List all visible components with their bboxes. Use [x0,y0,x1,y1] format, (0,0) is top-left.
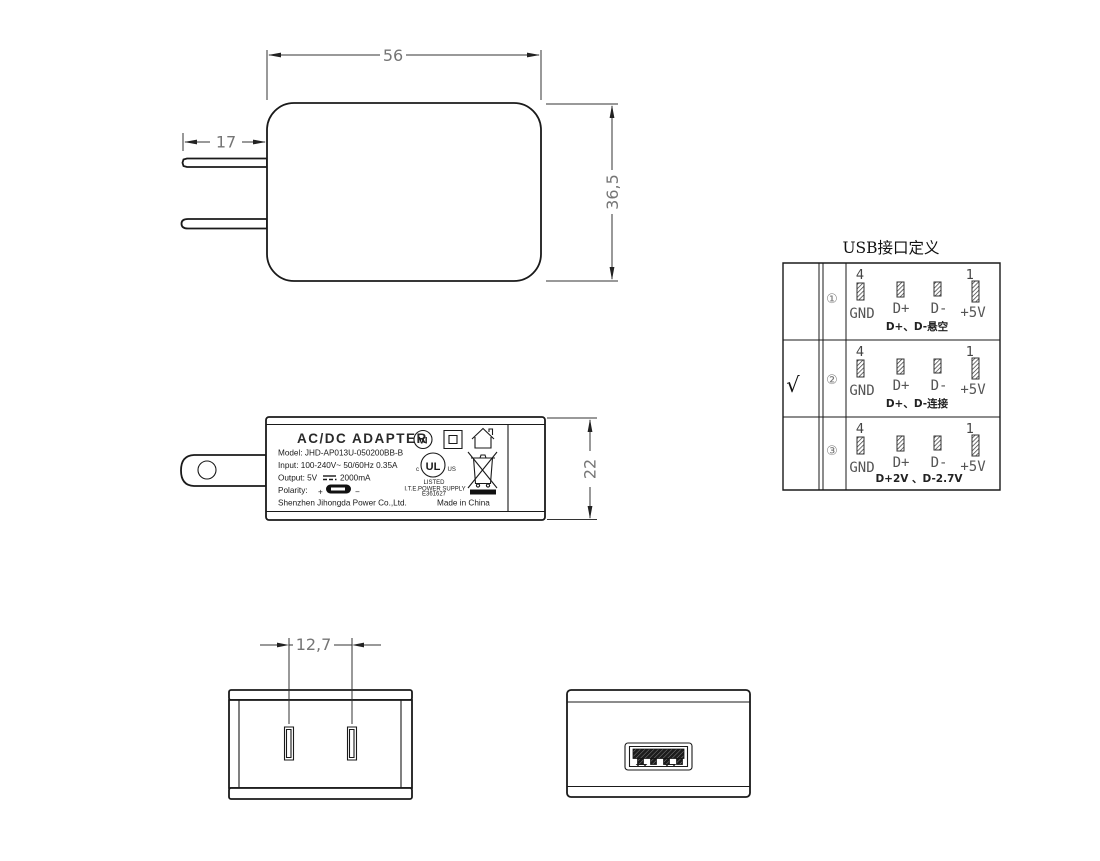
ul-us-text: US [448,467,456,473]
pin-label-gnd: GND [849,460,874,476]
usb-table-border [783,263,1000,490]
label-output: Output: 5V [278,474,318,483]
usb-table-row: ② √ 4 1 GND D+ D- +5V D+、D-连接 [786,345,986,410]
dim-17-text: 17 [216,133,236,152]
label-title: AC/DC ADAPTER [297,431,428,446]
pin-label-dminus: D- [931,455,948,471]
usb-table-row: ③ 4 1 GND D+ D- +5V D+2V 、D-2.7V [826,422,986,485]
usb-contact-pin [651,759,657,765]
front-prong-bottom [182,219,268,229]
pin-label-dplus: D+ [893,455,910,471]
pin-gnd-icon [857,437,864,454]
row-index: ② [826,373,838,388]
row-index: ① [826,292,838,307]
pin-dminus-icon [934,282,941,296]
pin-dplus-icon [897,359,904,374]
plug-face-bottom-strip [229,788,412,799]
pin-label-dminus: D- [931,301,948,317]
usb-contact-pin [638,759,644,765]
dimension-thickness-22: 22 [547,418,600,520]
label-made-in: Made in China [437,499,490,508]
pin-label-dminus: D- [931,378,948,394]
dim-36-5-text: 36,5 [603,174,622,210]
row-check: √ [786,373,800,397]
ul-mark-text: UL [426,461,441,473]
label-model: Model: JHD-AP013U-050200BB-B [278,449,404,458]
dimension-width-56: 56 [267,46,541,100]
dim-56-text: 56 [383,46,403,65]
adapter-drawing-svg: 56 17 36,5 AC/DC ADAPTE [0,0,1100,861]
bottom-view-plug-face: 12,7 [229,634,412,799]
plug-face-top-strip [229,690,412,700]
dim-22-text: 22 [581,459,600,479]
label-manufacturer: Shenzhen Jihongda Power Co.,Ltd. [278,499,407,508]
pin-gnd-icon [857,360,864,377]
label-output-current: 2000mA [340,474,371,483]
pin-number-4: 4 [856,422,864,437]
usb-polarity-icon [326,485,351,494]
polarity-minus: − [355,488,360,497]
front-view: 56 17 36,5 [182,46,623,281]
bottom-view-usb-face [567,690,750,797]
dim-12-7-text: 12,7 [296,635,332,654]
usb-port [625,743,692,770]
pin-label-5v: +5V [960,305,986,321]
usb-definition-table: USB接口定义 ① 4 1 GND D+ D- +5V D+、D-悬空 ② √ … [783,239,1000,490]
pin-dplus-icon [897,436,904,451]
usb-table-title: USB接口定义 [842,239,939,257]
pin-number-4: 4 [856,345,864,360]
row-note: D+、D-连接 [886,397,949,410]
pin-5v-icon [972,435,979,456]
side-view: AC/DC ADAPTER Model: JHD-AP013U-050200BB… [181,417,600,520]
label-polarity: Polarity: [278,486,308,495]
side-prong [181,455,266,486]
dimension-height-36-5: 36,5 [546,104,622,281]
ul-file-text: E361627 [422,492,447,498]
weee-bar [470,490,496,495]
pin-dminus-icon [934,359,941,373]
usb-contact-pin [664,759,670,765]
pin-label-dplus: D+ [893,301,910,317]
ul-listed-text: LISTED [423,480,445,486]
pin-gnd-icon [857,283,864,300]
efficiency-vi-text: VI [419,436,428,447]
usb-tongue [633,749,684,759]
pin-label-5v: +5V [960,459,986,475]
pin-5v-icon [972,358,979,379]
pin-label-5v: +5V [960,382,986,398]
plug-face-body [229,700,412,788]
polarity-plus: + [318,488,323,497]
pin-dplus-icon [897,282,904,297]
usb-table-row: ① 4 1 GND D+ D- +5V D+、D-悬空 [826,268,986,333]
ul-c-text: c [416,467,419,473]
pin-label-gnd: GND [849,383,874,399]
pin-label-gnd: GND [849,306,874,322]
usb-contact-pin [677,759,683,765]
pin-dminus-icon [934,436,941,450]
row-index: ③ [826,444,838,459]
pin-label-dplus: D+ [893,378,910,394]
front-prong-top [183,159,268,168]
row-note: D+、D-悬空 [886,320,948,333]
adapter-body-front [267,103,541,281]
drawing-canvas: 56 17 36,5 AC/DC ADAPTE [0,0,1100,861]
pin-5v-icon [972,281,979,302]
pin-number-4: 4 [856,268,864,283]
row-note: D+2V 、D-2.7V [875,473,963,485]
label-input: Input: 100-240V~ 50/60Hz 0.35A [278,461,398,470]
dimension-prong-17: 17 [183,133,266,152]
